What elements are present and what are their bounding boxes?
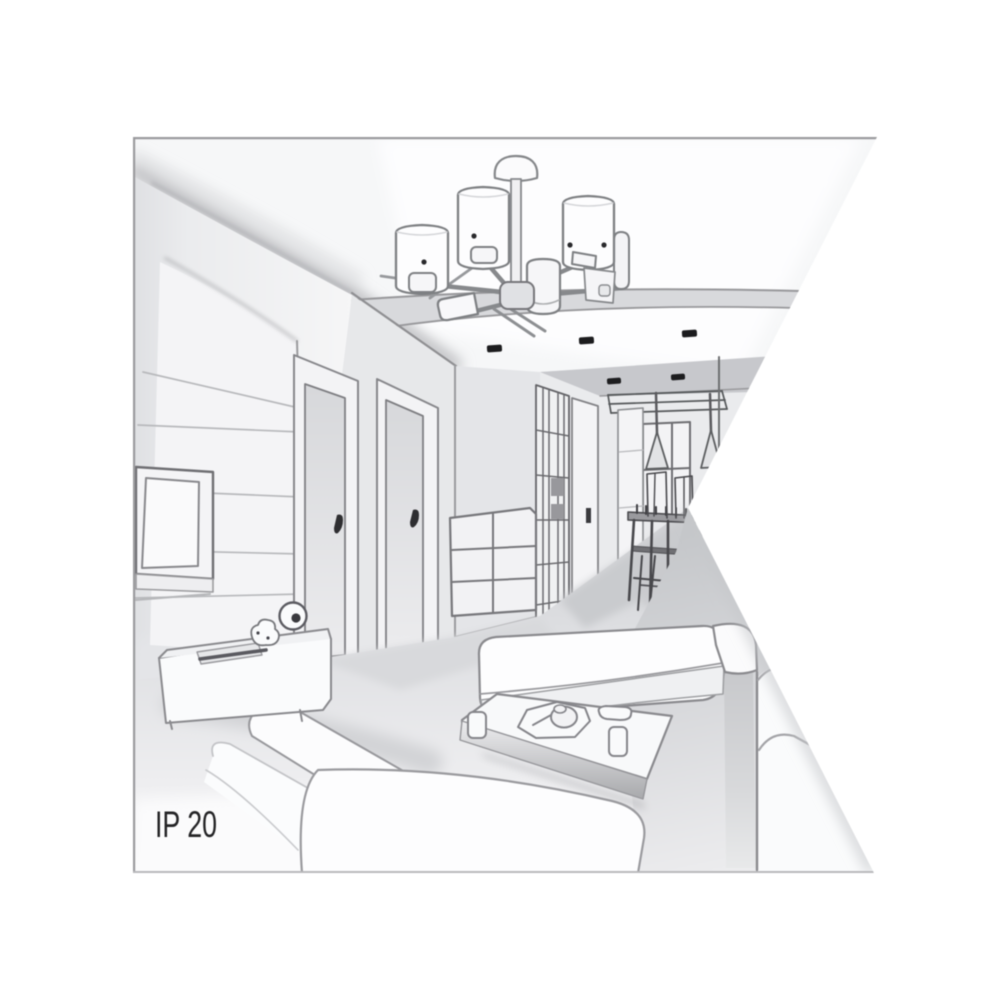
- svg-text:IP 20: IP 20: [155, 804, 217, 845]
